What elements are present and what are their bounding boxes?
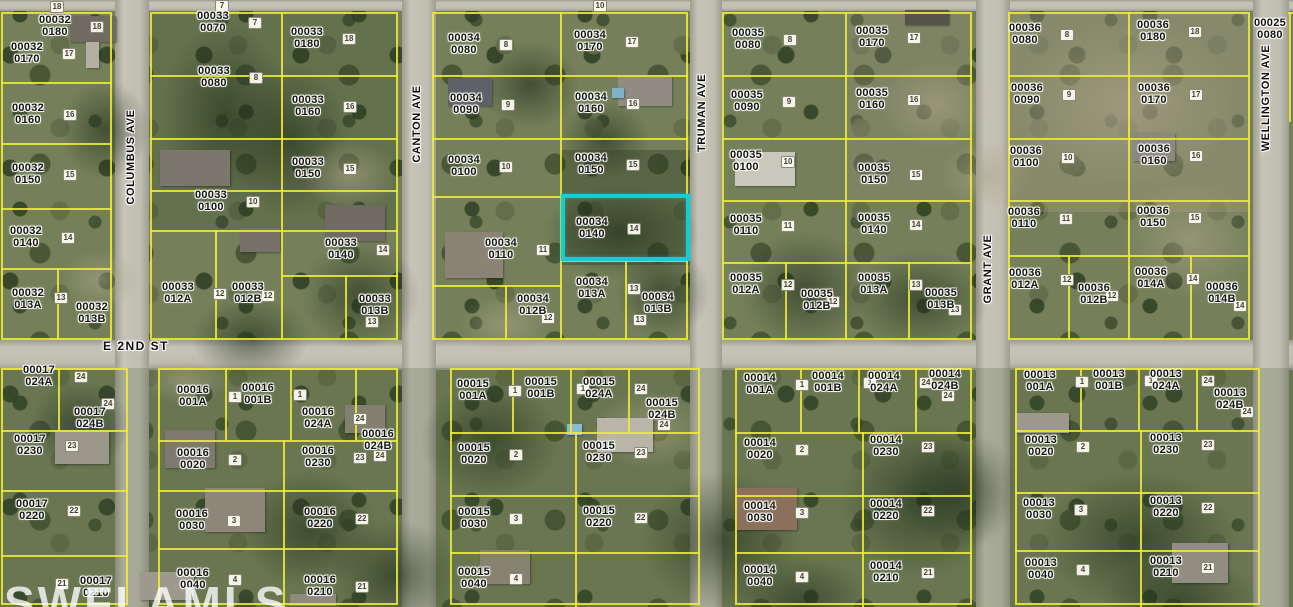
lot-number-chip: 22 (355, 513, 369, 525)
lot-number-chip: 16 (626, 98, 640, 110)
parcel-label-00016-024B: 00016024B (362, 428, 394, 452)
lot-number-chip: 13 (54, 292, 68, 304)
parcel-label-00014-001A: 00014001A (744, 372, 776, 396)
lot-number-chip: 3 (1074, 504, 1088, 516)
parcel-label-00035-0140: 000350140 (858, 212, 890, 236)
parcel-line (735, 432, 972, 434)
parcel-line (1, 430, 128, 432)
parcel-line (560, 12, 562, 196)
parcel-label-00033-013B: 00033013B (359, 293, 391, 317)
lot-number-chip: 11 (1059, 213, 1073, 225)
lot-number-chip: 2 (795, 444, 809, 456)
lot-number-chip: 18 (50, 1, 64, 13)
lot-number-chip: 14 (376, 244, 390, 256)
parcel-line (1008, 75, 1250, 77)
lot-number-chip: 15 (626, 159, 640, 171)
parcel-line (1008, 200, 1250, 202)
street-label-canton-ave: CANTON AVE (411, 85, 423, 162)
parcel-label-00032-0140: 000320140 (10, 225, 42, 249)
parcel-line (1196, 368, 1198, 430)
parcel-label-00014-001B: 00014001B (812, 370, 844, 394)
lot-number-chip: 10 (246, 196, 260, 208)
parcel-label-00014-0030: 000140030 (744, 500, 776, 524)
parcel-label-00034-013B: 00034013B (642, 291, 674, 315)
parcel-label-00032-0170: 000320170 (11, 41, 43, 65)
parcel-label-00032-013A: 00032013A (12, 287, 44, 311)
parcel-label-00015-024B: 00015024B (646, 397, 678, 421)
street-label-truman-ave: TRUMAN AVE (696, 74, 708, 152)
parcel-label-00016-001A: 00016001A (177, 384, 209, 408)
parcel-line (575, 432, 577, 607)
lot-number-chip: 4 (509, 573, 523, 585)
parcel-label-00015-0030: 000150030 (458, 506, 490, 530)
parcel-label-00014-0040: 000140040 (744, 564, 776, 588)
lot-number-chip: 18 (90, 21, 104, 33)
parcel-line (150, 230, 398, 232)
lot-number-chip: 22 (634, 512, 648, 524)
parcel-line (432, 138, 688, 140)
parcel-label-00035-0170: 000350170 (856, 25, 888, 49)
parcel-label-00033-0150: 000330150 (292, 156, 324, 180)
parcel-label-00034-0110: 000340110 (485, 237, 517, 261)
parcel-label-00036-0100: 000360100 (1010, 145, 1042, 169)
parcel-label-00015-0230: 000150230 (583, 440, 615, 464)
parcel-line (158, 490, 398, 492)
parcel-label-00015-0220: 000150220 (583, 505, 615, 529)
parcel-line (735, 495, 972, 497)
lot-number-chip: 22 (921, 505, 935, 517)
parcel-line (785, 262, 787, 340)
parcel-label-00036-0170: 000360170 (1138, 82, 1170, 106)
parcel-label-00033-012A: 00033012A (162, 281, 194, 305)
lot-number-chip: 15 (1188, 212, 1202, 224)
parcel-label-00035-0110: 000350110 (730, 213, 762, 237)
parcel-label-00013-001B: 00013001B (1093, 368, 1125, 392)
parcel-label-00016-0220: 000160220 (304, 506, 336, 530)
parcel-line (57, 268, 59, 340)
lot-number-chip: 1 (1075, 376, 1089, 388)
parcel-label-00035-0150: 000350150 (858, 162, 890, 186)
parcel-label-00035-0100: 000350100 (730, 149, 762, 173)
parcel-label-00014-0210: 000140210 (870, 560, 902, 584)
lot-number-chip: 24 (634, 383, 648, 395)
parcel-line (290, 368, 292, 440)
parcel-label-00032-0180: 000320180 (39, 14, 71, 38)
parcel-line (432, 75, 688, 77)
parcel-label-00017-024B: 00017024B (74, 406, 106, 430)
parcel-label-00034-0100: 000340100 (448, 154, 480, 178)
parcel-line (345, 275, 347, 340)
parcel-line (281, 275, 398, 277)
parcel-label-00033-0080: 000330080 (198, 65, 230, 89)
lot-number-chip: 1 (508, 385, 522, 397)
parcel-label-00013-0020: 000130020 (1025, 434, 1057, 458)
lot-number-chip: 24 (353, 413, 367, 425)
lot-number-chip: 8 (249, 72, 263, 84)
lot-number-chip: 17 (907, 32, 921, 44)
parcel-label-00033-0160: 000330160 (292, 94, 324, 118)
parcel-line (1, 143, 112, 145)
parcel-line (722, 200, 972, 202)
parcel-line (1, 555, 128, 557)
parcel-line (505, 285, 507, 340)
lot-number-chip: 17 (62, 48, 76, 60)
parcel-label-00036-014B: 00036014B (1206, 281, 1238, 305)
lot-number-chip: 10 (499, 161, 513, 173)
parcel-line (735, 552, 972, 554)
parcel-line (512, 368, 514, 432)
road-north-edge (0, 0, 1293, 11)
parcel-label-00017-0220: 000170220 (16, 498, 48, 522)
lot-number-chip: 4 (795, 571, 809, 583)
parcel-line (722, 138, 972, 140)
parcel-line (1289, 12, 1291, 122)
lot-number-chip: 12 (213, 288, 227, 300)
parcel-label-00036-012A: 00036012A (1009, 267, 1041, 291)
parcel-line (1, 490, 128, 492)
parcel-label-00033-0140: 000330140 (325, 237, 357, 261)
lot-number-chip: 9 (1062, 89, 1076, 101)
lot-number-chip: 15 (63, 169, 77, 181)
parcel-line (628, 368, 630, 432)
lot-number-chip: 13 (909, 279, 923, 291)
parcel-line (1015, 492, 1260, 494)
lot-number-chip: 13 (633, 314, 647, 326)
lot-number-chip: 3 (227, 515, 241, 527)
lot-number-chip: 21 (355, 581, 369, 593)
lot-number-chip: 12 (781, 279, 795, 291)
parcel-label-00016-0030: 000160030 (176, 508, 208, 532)
parcel-label-00013-0220: 000130220 (1150, 495, 1182, 519)
lot-number-chip: 10 (781, 156, 795, 168)
parcel-line (858, 368, 860, 432)
lot-number-chip: 23 (634, 447, 648, 459)
lot-number-chip: 8 (783, 34, 797, 46)
parcel-label-00015-001B: 00015001B (525, 376, 557, 400)
parcel-label-00013-001A: 00013001A (1024, 369, 1056, 393)
parcel-label-00034-0090: 000340090 (450, 92, 482, 116)
lot-number-chip: 18 (342, 33, 356, 45)
lot-number-chip: 12 (1060, 274, 1074, 286)
parcel-label-00034-0140: 000340140 (576, 216, 608, 240)
parcel-line (355, 368, 357, 440)
parcel-line (1138, 368, 1140, 430)
parcel-label-00033-0100: 000330100 (195, 189, 227, 213)
parcel-line (432, 285, 562, 287)
parcel-line (281, 230, 283, 340)
lot-number-chip: 8 (1060, 29, 1074, 41)
lot-number-chip: 24 (74, 371, 88, 383)
lot-number-chip: 21 (921, 567, 935, 579)
lot-number-chip: 14 (61, 232, 75, 244)
lot-number-chip: 8 (499, 39, 513, 51)
lot-number-chip: 14 (909, 219, 923, 231)
lot-number-chip: 24 (1201, 375, 1215, 387)
lot-number-chip: 16 (1189, 150, 1203, 162)
lot-number-chip: 2 (509, 449, 523, 461)
watermark: SWFLAMLS (4, 576, 289, 607)
parcel-label-00016-001B: 00016001B (242, 382, 274, 406)
parcel-line (862, 432, 864, 607)
lot-number-chip: 23 (921, 441, 935, 453)
lot-number-chip: 1 (228, 391, 242, 403)
parcel-label-00016-0210: 000160210 (304, 574, 336, 598)
parcel-label-00035-012B: 00035012B (801, 288, 833, 312)
parcel-label-00016-024A: 00016024A (302, 406, 334, 430)
lot-number-chip: 2 (228, 454, 242, 466)
parcel-label-00035-013B: 00035013B (925, 287, 957, 311)
parcel-line (150, 75, 398, 77)
parcel-label-00013-024A: 00013024A (1150, 368, 1182, 392)
parcel-label-00034-0160: 000340160 (575, 91, 607, 115)
parcel-label-00033-012B: 00033012B (232, 281, 264, 305)
parcel-label-00015-0040: 000150040 (458, 566, 490, 590)
lot-number-chip: 16 (343, 101, 357, 113)
street-label-e-2nd-st: E 2ND ST (103, 339, 169, 353)
satellite-parcel-map[interactable]: 0003201801800032017017000320160160003201… (0, 0, 1293, 607)
parcel-label-00014-0220: 000140220 (870, 498, 902, 522)
parcel-line (1, 208, 112, 210)
parcel-line (225, 368, 227, 440)
parcel-label-00025-0080: 000250080 (1254, 17, 1286, 41)
parcel-line (1, 82, 112, 84)
parcel-label-00032-013B: 00032013B (76, 301, 108, 325)
parcel-line (215, 230, 217, 340)
parcel-label-00015-0020: 000150020 (458, 442, 490, 466)
parcel-line (845, 12, 847, 340)
parcel-line (625, 260, 627, 340)
parcel-label-00013-0230: 000130230 (1150, 432, 1182, 456)
lot-number-chip: 16 (907, 94, 921, 106)
street-label-columbus-ave: COLUMBUS AVE (125, 109, 137, 204)
lot-number-chip: 16 (63, 109, 77, 121)
parcel-label-00033-0180: 000330180 (291, 26, 323, 50)
parcel-label-00034-013A: 00034013A (576, 276, 608, 300)
lot-number-chip: 4 (1076, 564, 1090, 576)
parcel-label-00015-024A: 00015024A (583, 376, 615, 400)
parcel-label-00034-0080: 000340080 (448, 32, 480, 56)
parcel-label-00013-0030: 000130030 (1023, 497, 1055, 521)
lot-number-chip: 1 (795, 379, 809, 391)
lot-number-chip: 10 (593, 0, 607, 12)
parcel-label-00034-0170: 000340170 (574, 29, 606, 53)
parcel-line (1128, 12, 1130, 340)
parcel-label-00035-0160: 000350160 (856, 87, 888, 111)
lot-number-chip: 13 (365, 316, 379, 328)
parcel-label-00036-0160: 000360160 (1138, 143, 1170, 167)
parcel-label-00014-024B: 00014024B (929, 368, 961, 392)
parcel-label-00014-024A: 00014024A (868, 370, 900, 394)
lot-number-chip: 17 (1189, 89, 1203, 101)
parcel-line (1008, 138, 1250, 140)
lot-number-chip: 13 (627, 283, 641, 295)
parcel-line (281, 12, 283, 230)
parcel-label-00017-0230: 000170230 (14, 433, 46, 457)
lot-number-chip: 7 (248, 17, 262, 29)
lot-number-chip: 22 (1201, 502, 1215, 514)
parcel-label-00036-012B: 00036012B (1078, 282, 1110, 306)
lot-number-chip: 3 (795, 507, 809, 519)
parcel-label-00036-0110: 000360110 (1008, 206, 1040, 230)
parcel-label-00013-0040: 000130040 (1025, 557, 1057, 581)
parcel-label-00036-0150: 000360150 (1137, 205, 1169, 229)
parcel-line (58, 368, 60, 430)
parcel-line (722, 262, 972, 264)
parcel-label-00034-0150: 000340150 (575, 152, 607, 176)
parcel-label-00035-0090: 000350090 (731, 89, 763, 113)
lot-number-chip: 3 (509, 513, 523, 525)
parcel-label-00014-0020: 000140020 (744, 437, 776, 461)
parcel-line (1190, 255, 1192, 340)
lot-number-chip: 2 (1076, 441, 1090, 453)
street-label-wellington-ave: WELLINGTON AVE (1260, 45, 1272, 152)
lot-number-chip: 18 (1188, 26, 1202, 38)
parcel-line (1068, 255, 1070, 340)
lot-number-chip: 11 (536, 244, 550, 256)
lot-number-chip: 14 (627, 223, 641, 235)
parcel-line (1008, 255, 1250, 257)
lot-number-chip: 9 (782, 96, 796, 108)
parcel-label-00034-012B: 00034012B (517, 293, 549, 317)
lot-number-chip: 22 (67, 505, 81, 517)
parcel-label-00016-0020: 000160020 (177, 447, 209, 471)
lot-number-chip: 23 (353, 452, 367, 464)
parcel-line (150, 190, 398, 192)
parcel-line (150, 138, 398, 140)
lot-number-chip: 10 (1061, 152, 1075, 164)
parcel-line (1140, 430, 1142, 607)
parcel-line (1015, 430, 1260, 432)
parcel-line (908, 262, 910, 340)
parcel-label-00035-013A: 00035013A (858, 272, 890, 296)
lot-number-chip: 9 (501, 99, 515, 111)
lot-number-chip: 17 (625, 36, 639, 48)
lot-number-chip: 23 (65, 440, 79, 452)
lot-number-chip: 1 (293, 389, 307, 401)
parcel-label-00036-014A: 00036014A (1135, 266, 1167, 290)
parcel-line (570, 368, 572, 432)
parcel-line (915, 368, 917, 432)
parcel-line (158, 548, 398, 550)
parcel-label-00014-0230: 000140230 (870, 434, 902, 458)
parcel-label-00036-0180: 000360180 (1137, 19, 1169, 43)
parcel-label-00032-0160: 000320160 (12, 102, 44, 126)
parcel-line (1015, 550, 1260, 552)
lot-number-chip: 23 (1201, 439, 1215, 451)
parcel-label-00015-001A: 00015001A (457, 378, 489, 402)
parcel-label-00013-0210: 000130210 (1150, 555, 1182, 579)
street-label-grant-ave: GRANT AVE (982, 235, 994, 304)
parcel-label-00013-024B: 00013024B (1214, 387, 1246, 411)
lot-number-chip: 14 (1186, 273, 1200, 285)
parcel-label-00035-012A: 00035012A (730, 272, 762, 296)
parcel-label-00036-0090: 000360090 (1011, 82, 1043, 106)
parcel-line (722, 75, 972, 77)
parcel-label-00017-024A: 00017024A (23, 364, 55, 388)
lot-number-chip: 15 (909, 169, 923, 181)
parcel-line (800, 368, 802, 432)
parcel-label-00036-0080: 000360080 (1009, 22, 1041, 46)
parcel-label-00033-0070: 000330070 (197, 10, 229, 34)
parcel-label-00032-0150: 000320150 (12, 162, 44, 186)
lot-number-chip: 11 (781, 220, 795, 232)
lot-number-chip: 15 (343, 163, 357, 175)
parcel-label-00035-0080: 000350080 (732, 27, 764, 51)
parcel-label-00016-0230: 000160230 (302, 445, 334, 469)
lot-number-chip: 21 (1201, 562, 1215, 574)
